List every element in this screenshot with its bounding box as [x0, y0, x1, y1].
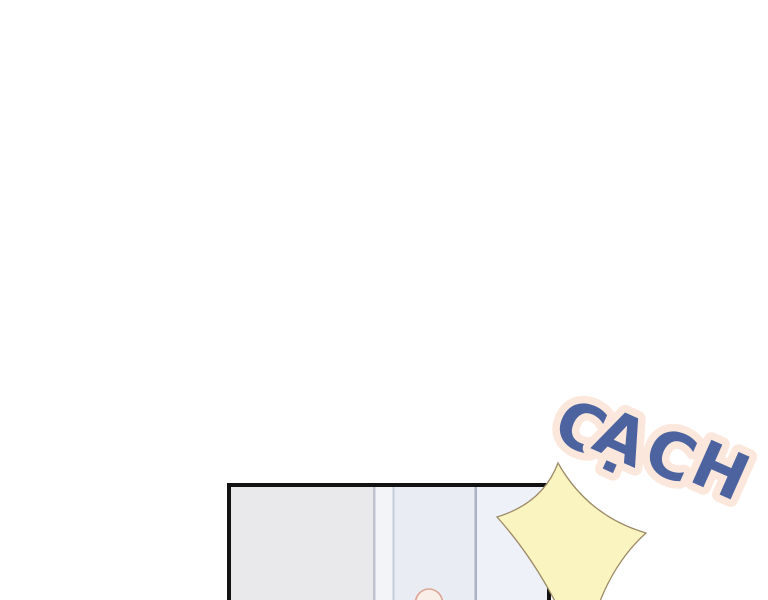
panel-door-frame: [376, 487, 393, 600]
panel-wall-left: [231, 487, 373, 600]
panel-wall-seam-2: [393, 487, 395, 600]
comic-panel: [229, 485, 549, 600]
panel-wall-seam-3: [475, 487, 478, 600]
comic-page: CẠCH: [0, 0, 768, 600]
panel-wall-mid: [395, 487, 475, 600]
comic-canvas: CẠCH: [0, 0, 768, 600]
panel-wall-seam-1: [373, 487, 376, 600]
